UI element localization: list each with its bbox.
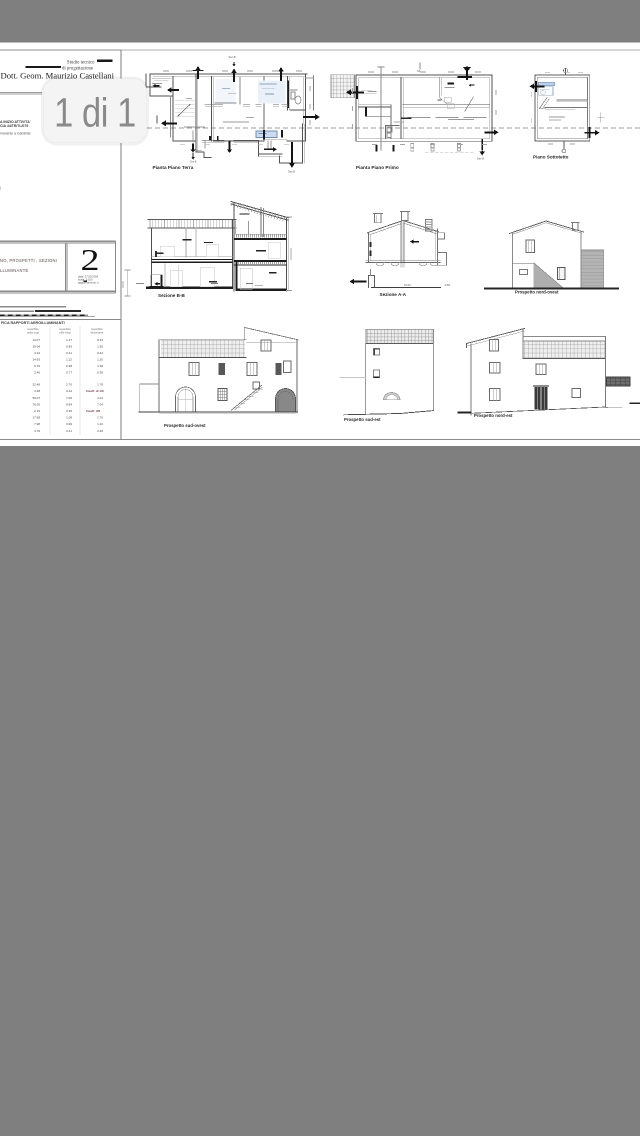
svg-text:Sez.B: Sez.B [229, 55, 236, 59]
svg-text:1.28: 1.28 [97, 364, 103, 368]
svg-text:17.58: 17.58 [32, 416, 40, 420]
svg-text:Insuff. di 1/8: Insuff. di 1/8 [86, 389, 104, 393]
svg-text:50.07: 50.07 [32, 396, 40, 400]
svg-text:0.98: 0.98 [66, 364, 72, 368]
svg-text:4.79: 4.79 [34, 429, 40, 433]
svg-text:0.77: 0.77 [66, 371, 72, 375]
svg-text:14.65: 14.65 [32, 358, 40, 362]
svg-text:8.33: 8.33 [97, 338, 103, 342]
svg-text:0.48: 0.48 [97, 429, 103, 433]
svg-text:Piano Sottotetto: Piano Sottotetto [533, 155, 569, 160]
svg-text:±0.00: ±0.00 [404, 283, 411, 287]
svg-text:Prospetto sud-ovest: Prospetto sud-ovest [164, 423, 206, 428]
svg-text:Sezione B-B: Sezione B-B [158, 293, 185, 298]
svg-text:9.76: 9.76 [34, 364, 40, 368]
svg-text:-0.65: -0.65 [444, 283, 450, 287]
svg-text:2.46: 2.46 [34, 371, 40, 375]
svg-text:0.44: 0.44 [66, 389, 72, 393]
svg-text:NO, PROSPETTI , SEZIONI: NO, PROSPETTI , SEZIONI [0, 258, 57, 263]
svg-text:CIA 44/TR/7L/075: CIA 44/TR/7L/075 [0, 124, 28, 128]
svg-text:14.07: 14.07 [32, 338, 40, 342]
svg-text:0.99: 0.99 [66, 422, 72, 426]
svg-text:0.41: 0.41 [66, 351, 72, 355]
svg-text:0.35: 0.35 [66, 409, 72, 413]
svg-text:4.24: 4.24 [34, 351, 40, 355]
svg-text:22.48: 22.48 [32, 383, 40, 387]
svg-text:1.78: 1.78 [97, 383, 103, 387]
svg-text:19.04: 19.04 [32, 345, 40, 349]
svg-text:Prospetto nord-ovest: Prospetto nord-ovest [515, 290, 559, 295]
svg-text:1.22: 1.22 [66, 358, 72, 362]
svg-text:Sez.B: Sez.B [288, 170, 295, 174]
svg-text:Studio tecnico: Studio tecnico [67, 60, 95, 65]
svg-text:utile (mq): utile (mq) [59, 330, 70, 334]
svg-text:Pianta Piano Terra: Pianta Piano Terra [153, 165, 194, 170]
svg-text:manente a Gambilia: manente a Gambilia [0, 132, 30, 136]
svg-text:Insuff. 4/8: Insuff. 4/8 [86, 409, 100, 413]
svg-text:0.42: 0.42 [97, 351, 103, 355]
svg-text:1.56: 1.56 [97, 345, 103, 349]
svg-text:0.36: 0.36 [97, 371, 103, 375]
svg-text:Prospetto nord-est: Prospetto nord-est [474, 413, 513, 418]
svg-text:netta (mq): netta (mq) [27, 330, 39, 334]
svg-text:Sez.B: Sez.B [477, 157, 484, 161]
svg-text:7.04: 7.04 [97, 402, 103, 406]
svg-text:7.98: 7.98 [34, 422, 40, 426]
svg-text:Sezione A-A: Sezione A-A [380, 292, 407, 297]
svg-text:illuminante: illuminante [91, 330, 104, 334]
svg-text:Sez.B: Sez.B [190, 161, 197, 164]
svg-text:0.41: 0.41 [66, 429, 72, 433]
svg-text:1.20: 1.20 [97, 358, 103, 362]
svg-text:Prospetto sud-est: Prospetto sud-est [344, 417, 381, 422]
svg-text:1 di 1: 1 di 1 [54, 91, 136, 136]
svg-text:3.22: 3.22 [97, 396, 103, 400]
svg-text:3.28: 3.28 [34, 389, 40, 393]
svg-text:aggiornamento: il: aggiornamento: il [78, 281, 99, 285]
svg-text:1.22: 1.22 [97, 422, 103, 426]
svg-text:7.06: 7.06 [66, 396, 72, 400]
svg-text:2.15: 2.15 [34, 409, 40, 413]
svg-text:FICA RAPPORTI AEROILLUMINANTI: FICA RAPPORTI AEROILLUMINANTI [1, 321, 65, 325]
svg-text:1.17: 1.17 [66, 338, 72, 342]
svg-text:8.84: 8.84 [66, 402, 72, 406]
svg-text:1.08: 1.08 [66, 416, 72, 420]
svg-text:2: 2 [81, 242, 100, 277]
svg-text:76.05: 76.05 [32, 402, 40, 406]
svg-text:2.70: 2.70 [97, 416, 103, 420]
svg-text:Pianta Piano Primo: Pianta Piano Primo [356, 165, 399, 170]
svg-text:LLUMINANTE: LLUMINANTE [0, 268, 28, 273]
svg-text:2.70: 2.70 [66, 383, 72, 387]
svg-text:0.85: 0.85 [66, 345, 72, 349]
